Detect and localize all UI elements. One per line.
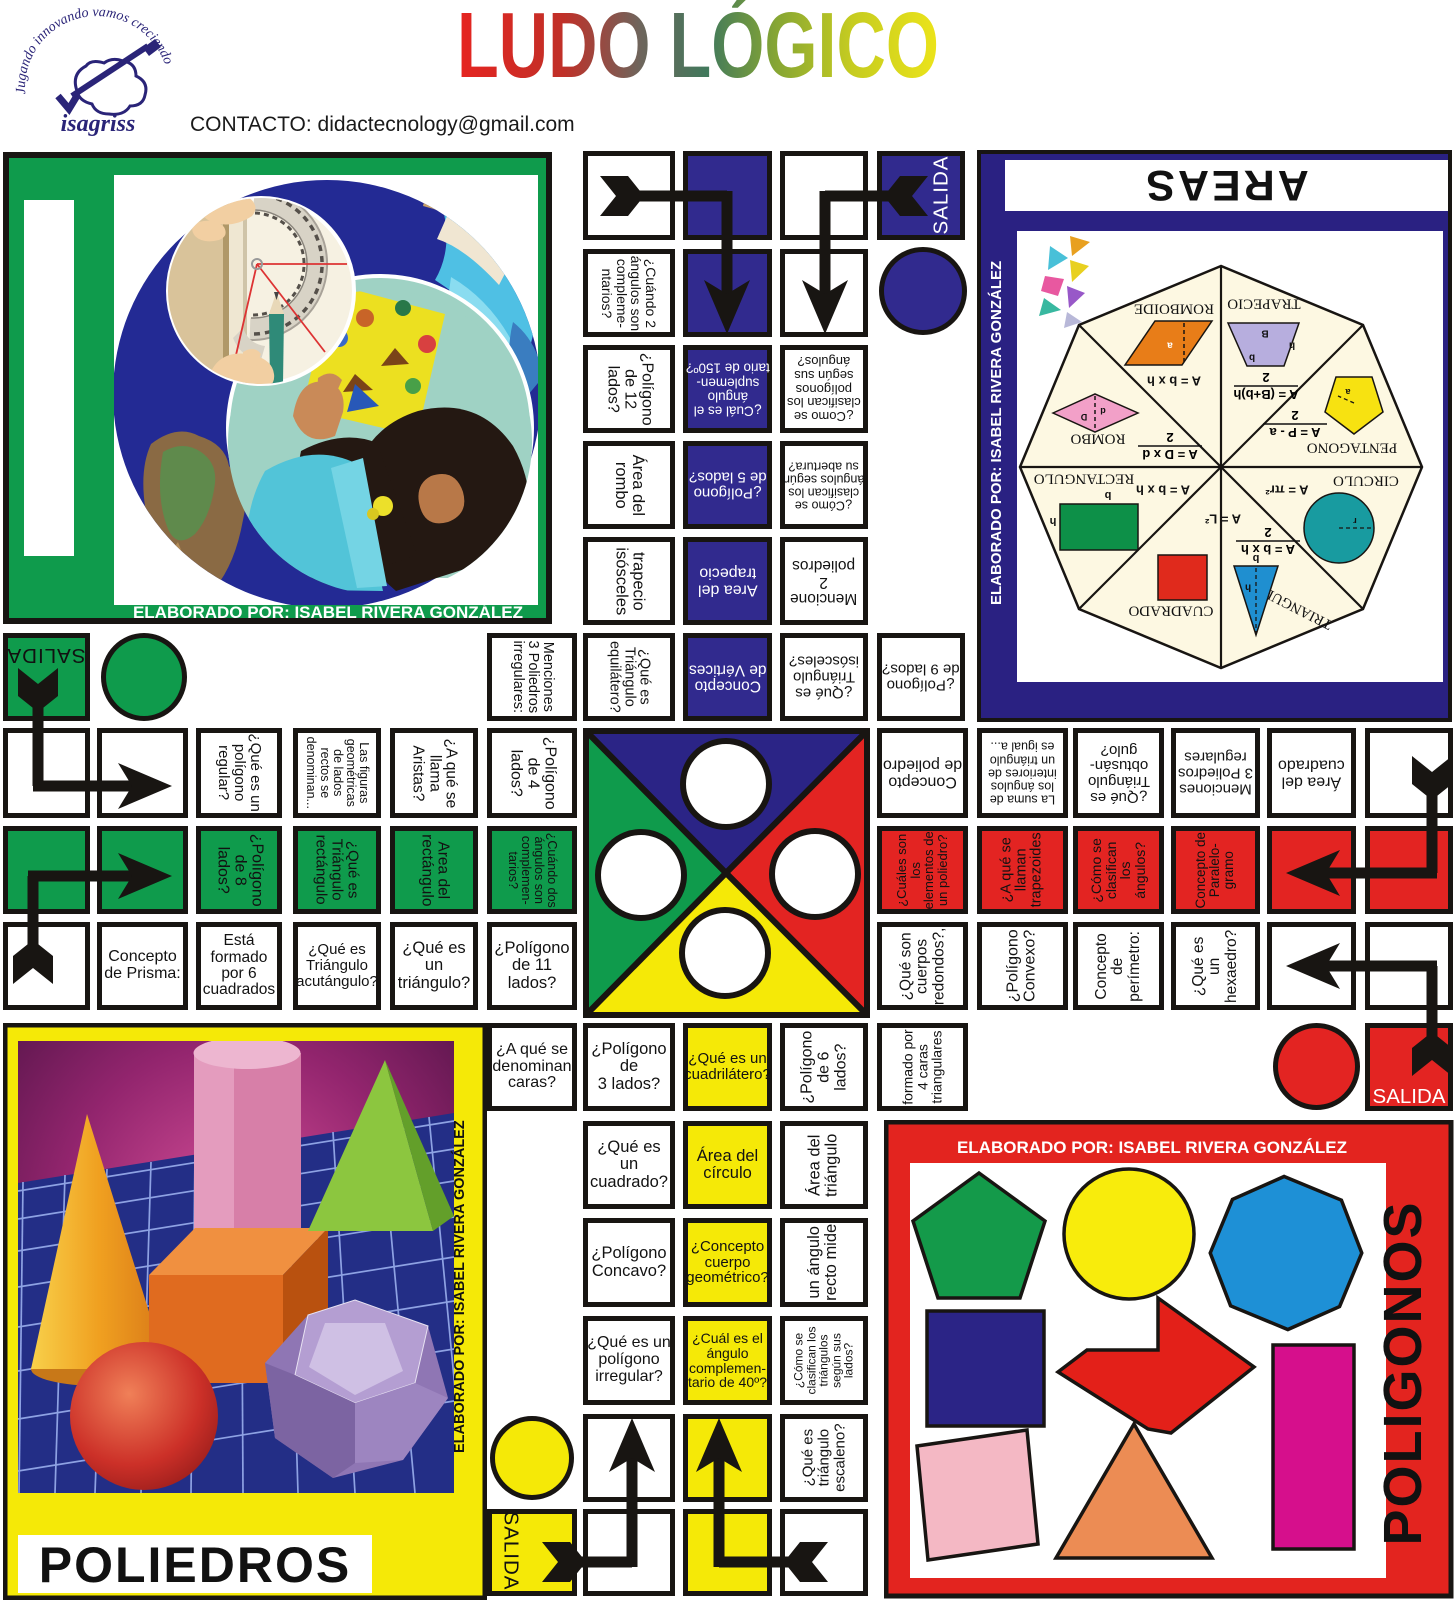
- svg-text:2: 2: [1166, 430, 1173, 445]
- svg-text:D: D: [1080, 412, 1087, 422]
- svg-text:ELABORADO POR: ISABEL RIVERA G: ELABORADO POR: ISABEL RIVERA GONZÁLEZ: [957, 1138, 1347, 1157]
- svg-text:h: h: [1289, 339, 1295, 350]
- svg-text:A = P - a: A = P - a: [1269, 425, 1321, 440]
- svg-text:isagriss: isagriss: [61, 111, 136, 137]
- svg-text:h: h: [1245, 581, 1251, 592]
- svg-text:A = L²: A = L²: [1204, 511, 1241, 526]
- svg-text:CUADRADO: CUADRADO: [1128, 603, 1213, 619]
- svg-text:2: 2: [1262, 370, 1269, 385]
- svg-text:A = b x h: A = b x h: [1136, 482, 1190, 497]
- svg-text:A = b x h: A = b x h: [1241, 542, 1295, 557]
- svg-text:A = b x h: A = b x h: [1147, 373, 1201, 388]
- svg-text:RECTANGULO: RECTANGULO: [1034, 471, 1135, 487]
- svg-text:d: d: [1100, 406, 1106, 416]
- svg-text:a: a: [1167, 339, 1173, 350]
- svg-text:ELABORADO POR: ISABEL RIVERA G: ELABORADO POR: ISABEL RIVERA GONZÁLEZ: [133, 603, 523, 622]
- svg-text:2: 2: [1291, 408, 1298, 423]
- svg-text:Jugando innovando vamos cre: Jugando innovando vamos creciendo: [14, 5, 176, 95]
- svg-text:A = πr²: A = πr²: [1265, 482, 1309, 497]
- svg-text:A = D x d: A = D x d: [1142, 447, 1198, 462]
- svg-text:a: a: [1345, 387, 1351, 397]
- svg-text:A = (B+b)h: A = (B+b)h: [1233, 387, 1298, 402]
- svg-text:POLIEDROS: POLIEDROS: [39, 1537, 351, 1593]
- svg-text:TRIANGULO: TRIANGULO: [1252, 580, 1335, 633]
- svg-text:AREAS: AREAS: [1143, 161, 1309, 209]
- svg-text:h: h: [1049, 515, 1056, 527]
- svg-text:b: b: [1252, 552, 1259, 564]
- svg-text:TRAPECIO: TRAPECIO: [1227, 296, 1301, 312]
- svg-text:ROMBOIDE: ROMBOIDE: [1134, 301, 1214, 317]
- svg-text:POLIGONOS: POLIGONOS: [1373, 1200, 1433, 1545]
- svg-text:b: b: [1104, 489, 1111, 501]
- svg-text:ROMBO: ROMBO: [1070, 431, 1125, 447]
- svg-text:ELABORADO POR: ISABEL RIVERA G: ELABORADO POR: ISABEL RIVERA GONZÁLEZ: [988, 261, 1005, 605]
- svg-text:B: B: [1261, 327, 1268, 338]
- svg-text:PENTAGONO: PENTAGONO: [1307, 440, 1398, 456]
- svg-text:CIRCULO: CIRCULO: [1333, 473, 1399, 489]
- svg-text:2: 2: [1264, 525, 1271, 540]
- svg-text:b: b: [1249, 351, 1255, 362]
- svg-text:r: r: [1353, 516, 1357, 526]
- svg-text:ELABORADO POR: ISABEL RIVERA G: ELABORADO POR: ISABEL RIVERA GONZÁLEZ: [451, 1120, 468, 1453]
- svg-text:LUDO LÓGICO: LUDO LÓGICO: [457, 0, 939, 97]
